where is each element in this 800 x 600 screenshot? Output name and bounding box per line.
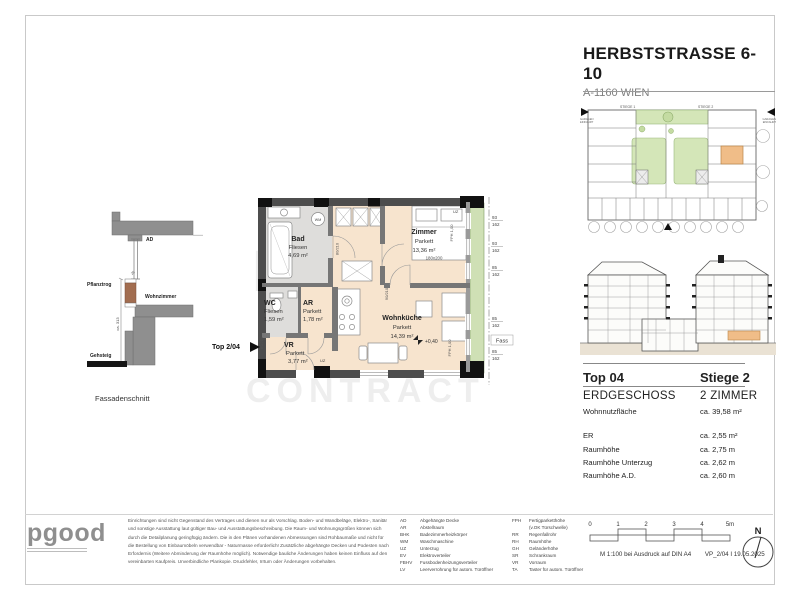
room-zimmer-name: Zimmer [411, 229, 437, 236]
unit-floor-label: ERDGESCHOSS [583, 390, 676, 402]
logo-text: pgood [27, 521, 106, 546]
svg-text:93: 93 [492, 215, 498, 220]
svg-text:3,77 m²: 3,77 m² [288, 359, 308, 365]
metric-value: ca. 2,62 m [700, 458, 735, 467]
svg-text:EINFAHRT: EINFAHRT [763, 120, 776, 124]
svg-text:5m: 5m [726, 522, 734, 528]
site-plan-drawing: STIEGE 1 STIEGE 2 GARAGEN EINFAHRT GARAG… [580, 105, 776, 233]
metric-value: ca. 2,55 m² [700, 431, 738, 440]
site-plan: STIEGE 1 STIEGE 2 GARAGEN EINFAHRT GARAG… [580, 98, 776, 234]
section-drawing [580, 255, 776, 355]
svg-text:Parkett: Parkett [303, 309, 322, 315]
fass-label: Fass [496, 339, 508, 345]
svg-text:1: 1 [616, 522, 620, 528]
svg-text:162: 162 [492, 272, 500, 277]
facade-planter-dim: 25 [130, 270, 136, 276]
metric-label: Raumhöhe Unterzug [583, 458, 652, 467]
svg-text:162: 162 [492, 356, 500, 361]
svg-text:13,36 m²: 13,36 m² [413, 248, 436, 254]
room-wc-name: WC [264, 300, 276, 307]
site-highlight-unit [721, 146, 743, 164]
metric-label: ER [583, 431, 593, 440]
door-label-bad: 80/210 [335, 242, 340, 255]
svg-text:162: 162 [492, 248, 500, 253]
plan-sheet: IMMO CONTRACT HERBSTSTRASSE 6-10 A-1160 … [0, 0, 800, 600]
facade-drawing: AD Pflanztrog Wohnzimmer Gehsteig ca. 31… [87, 212, 203, 367]
svg-text:1,78 m²: 1,78 m² [303, 317, 323, 323]
abbr-legend-col2: FPHFertigparketthöhe (v.OK Türschwelle) … [512, 517, 583, 573]
room-wohnkueche-name: Wohnküche [382, 315, 422, 322]
room-bad-name: Bad [291, 236, 304, 243]
facade-ad-label: AD [146, 237, 154, 243]
svg-text:EINFAHRT: EINFAHRT [580, 120, 594, 124]
wm-label: WM [315, 218, 321, 222]
svg-text:Fliesen: Fliesen [264, 309, 283, 315]
disclaimer-line: und sonstige Ausstattung laut gültiger B… [128, 525, 398, 533]
uz-label-entry: UZ [320, 358, 326, 363]
svg-text:Parkett: Parkett [415, 239, 434, 245]
svg-text:3: 3 [672, 522, 676, 528]
svg-text:85: 85 [492, 349, 498, 354]
unit-top-label: Top 04 [583, 370, 624, 385]
area-label: Wohnnutzfläche [583, 407, 637, 416]
compass-n-label: N [755, 526, 762, 537]
dining-table [368, 343, 398, 363]
svg-text:93: 93 [492, 241, 498, 246]
door-label-wc: 80/210 [259, 336, 264, 349]
uz-label-top: UZ [453, 209, 459, 214]
room-vr-name: VR [284, 342, 294, 349]
svg-text:14,39 m²: 14,39 m² [391, 334, 414, 340]
floor-plan-drawing: Bad Fliesen 4,69 m² Zimmer Parkett 13,36… [212, 196, 513, 385]
toilet [270, 293, 283, 298]
svg-text:162: 162 [492, 222, 500, 227]
svg-text:0: 0 [588, 522, 592, 528]
svg-text:85: 85 [492, 316, 498, 321]
disclaimer-line: durch die Detailplanung geringfügig ände… [128, 534, 398, 542]
page-title: HERBSTSTRASSE 6-10 [583, 44, 775, 84]
scale-bar: 0 1 2 3 4 5m [585, 520, 735, 550]
facade-wohnzimmer-label: Wohnzimmer [145, 294, 176, 300]
svg-text:4,69 m²: 4,69 m² [288, 253, 308, 259]
svg-text:162: 162 [492, 323, 500, 328]
section-highlight-unit [728, 331, 760, 340]
metric-label: Raumhöhe A.D. [583, 471, 636, 480]
door-label-zimmer: 90/210 [384, 287, 389, 300]
bed-size-label: 180x200 [426, 256, 443, 261]
metric-value: ca. 2,75 m [700, 445, 735, 454]
room-ar-name: AR [303, 300, 313, 307]
site-arrow-right [767, 108, 775, 116]
abbr-legend-col1: ADAbgehängte Decke ARAbstellraum BHKBade… [400, 517, 493, 573]
unit-stiege-label: Stiege 2 [700, 370, 750, 385]
fph-label-top: FPH 1,00 [449, 224, 454, 242]
facade-caption: Fassadenschnitt [95, 394, 150, 403]
facade-gehsteig-label: Gehsteig [90, 353, 111, 359]
facade-height-dim: ca. 313 [115, 317, 120, 331]
svg-text:Parkett: Parkett [393, 325, 412, 331]
unit-info: Top 04 Stiege 2 ERDGESCHOSS 2 ZIMMER Woh… [583, 363, 775, 483]
sofa [442, 293, 466, 317]
logo: pgood [27, 521, 106, 553]
disclaimer-line: vereinbarten Kaufpreis. Unverbindliche P… [128, 558, 398, 566]
svg-text:85: 85 [492, 265, 498, 270]
unit-type-label: 2 ZIMMER [700, 390, 757, 402]
svg-text:1,59 m²: 1,59 m² [264, 317, 284, 323]
floor-plan: Bad Fliesen 4,69 m² Zimmer Parkett 13,36… [210, 193, 522, 391]
planter-strip [470, 203, 484, 373]
svg-text:Parkett: Parkett [286, 351, 305, 357]
svg-text:Fliesen: Fliesen [289, 245, 308, 251]
gehsteig-shape [87, 361, 127, 367]
metric-label: Raumhöhe [583, 445, 620, 454]
scale-note-text: M 1:100 bei Ausdruck auf DIN A4 [600, 551, 691, 558]
fph-label-bottom: FPH 1,00 [447, 339, 452, 357]
level-marker-label: +0,40 [425, 339, 438, 345]
header-divider [583, 91, 775, 92]
site-label-stiege2: STIEGE 2 [698, 105, 713, 109]
logo-subtext-bars [27, 548, 87, 553]
disclaimer-line: Erfordernis (Weitere Abminderung der Rau… [128, 550, 398, 558]
area-value: ca. 39,58 m² [700, 407, 742, 416]
metric-value: ca. 2,60 m [700, 471, 735, 480]
pflanztrog-shape [125, 283, 136, 303]
footer-divider [25, 514, 773, 515]
compass: N [736, 522, 782, 572]
top-marker-label: Top 2/04 [212, 344, 240, 351]
svg-text:2: 2 [644, 522, 648, 528]
svg-text:4: 4 [700, 522, 704, 528]
disclaimer-line: die Bestellung von Einbaumöbeln verwendb… [128, 542, 398, 550]
building-section [578, 253, 778, 361]
disclaimer-line: Einrichtungen sind nicht Gegenstand des … [128, 517, 398, 525]
compass-needle-icon [755, 537, 761, 558]
facade-pflanztrog-label: Pflanztrog [87, 282, 111, 288]
disclaimer: Einrichtungen sind nicht Gegenstand des … [128, 517, 398, 567]
site-label-stiege1: STIEGE 1 [620, 105, 635, 109]
compass-circle [743, 537, 773, 567]
site-arrow-bottom [664, 223, 672, 230]
